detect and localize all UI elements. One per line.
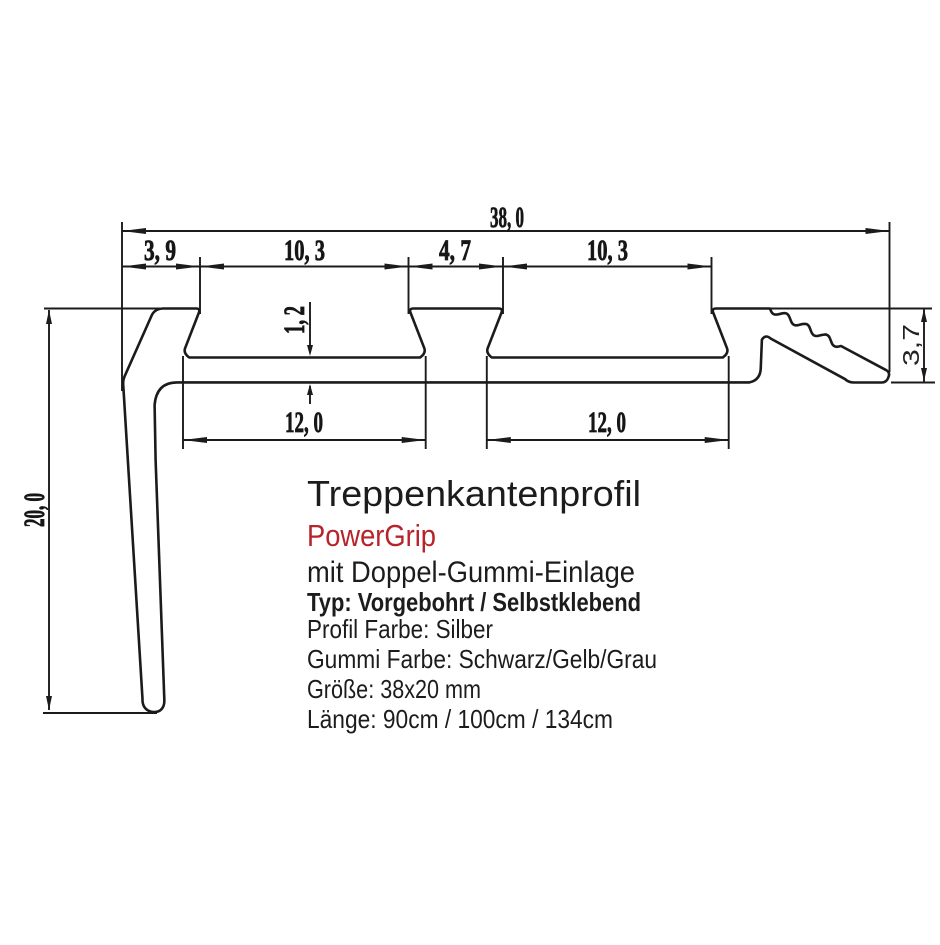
svg-text:1, 2: 1, 2 — [278, 306, 311, 334]
svg-text:20, 0: 20, 0 — [18, 493, 51, 527]
svg-text:38, 0: 38, 0 — [490, 201, 524, 234]
svg-text:Gummi Farbe: Schwarz/Gelb/Grau: Gummi Farbe: Schwarz/Gelb/Grau — [307, 644, 657, 674]
svg-text:10, 3: 10, 3 — [284, 234, 325, 267]
svg-text:12, 0: 12, 0 — [588, 406, 626, 439]
svg-text:10, 3: 10, 3 — [587, 234, 628, 267]
svg-text:3, 9: 3, 9 — [144, 234, 176, 267]
svg-text:PowerGrip: PowerGrip — [307, 518, 436, 553]
svg-text:Größe: 38x20 mm: Größe: 38x20 mm — [307, 674, 481, 704]
svg-text:Treppenkantenprofil: Treppenkantenprofil — [307, 473, 641, 514]
svg-text:Länge: 90cm / 100cm / 134cm: Länge: 90cm / 100cm / 134cm — [307, 704, 613, 734]
svg-text:Profil Farbe: Silber: Profil Farbe: Silber — [307, 614, 493, 644]
svg-text:12, 0: 12, 0 — [285, 406, 323, 439]
svg-text:mit Doppel-Gummi-Einlage: mit Doppel-Gummi-Einlage — [307, 556, 635, 589]
svg-text:4, 7: 4, 7 — [439, 234, 471, 267]
svg-text:3,7: 3,7 — [898, 324, 924, 366]
svg-text:Typ: Vorgebohrt / Selbstkleben: Typ: Vorgebohrt / Selbstklebend — [307, 587, 641, 617]
